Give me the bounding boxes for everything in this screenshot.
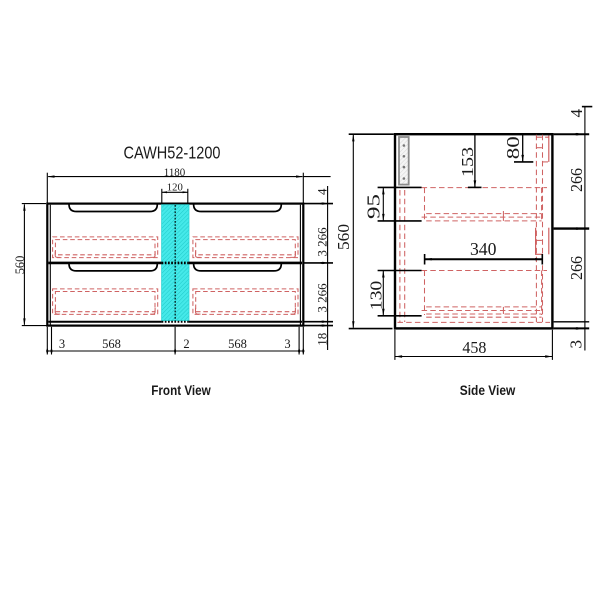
- svg-text:266: 266: [567, 168, 586, 192]
- svg-text:458: 458: [462, 338, 486, 357]
- svg-text:130: 130: [366, 281, 385, 311]
- svg-text:CAWH52-1200: CAWH52-1200: [124, 143, 221, 163]
- svg-text:266: 266: [567, 256, 586, 280]
- svg-text:560: 560: [334, 224, 353, 250]
- svg-text:4: 4: [567, 109, 586, 118]
- svg-text:340: 340: [470, 239, 497, 259]
- svg-text:80: 80: [503, 136, 523, 159]
- svg-text:4: 4: [314, 188, 329, 195]
- svg-text:3 266: 3 266: [314, 283, 329, 313]
- svg-text:568: 568: [102, 337, 121, 351]
- svg-text:560: 560: [13, 256, 27, 275]
- svg-text:1180: 1180: [164, 165, 186, 179]
- svg-text:Front View: Front View: [151, 382, 211, 398]
- svg-text:95: 95: [364, 194, 384, 219]
- svg-text:Side View: Side View: [460, 382, 516, 398]
- svg-text:3: 3: [59, 337, 65, 351]
- svg-text:3 266: 3 266: [314, 227, 329, 257]
- svg-text:120: 120: [167, 182, 183, 193]
- svg-text:568: 568: [228, 337, 247, 351]
- svg-text:3: 3: [284, 337, 290, 351]
- svg-text:2: 2: [183, 337, 189, 351]
- svg-text:3: 3: [566, 340, 585, 349]
- svg-text:18: 18: [314, 333, 329, 346]
- svg-text:153: 153: [458, 147, 477, 177]
